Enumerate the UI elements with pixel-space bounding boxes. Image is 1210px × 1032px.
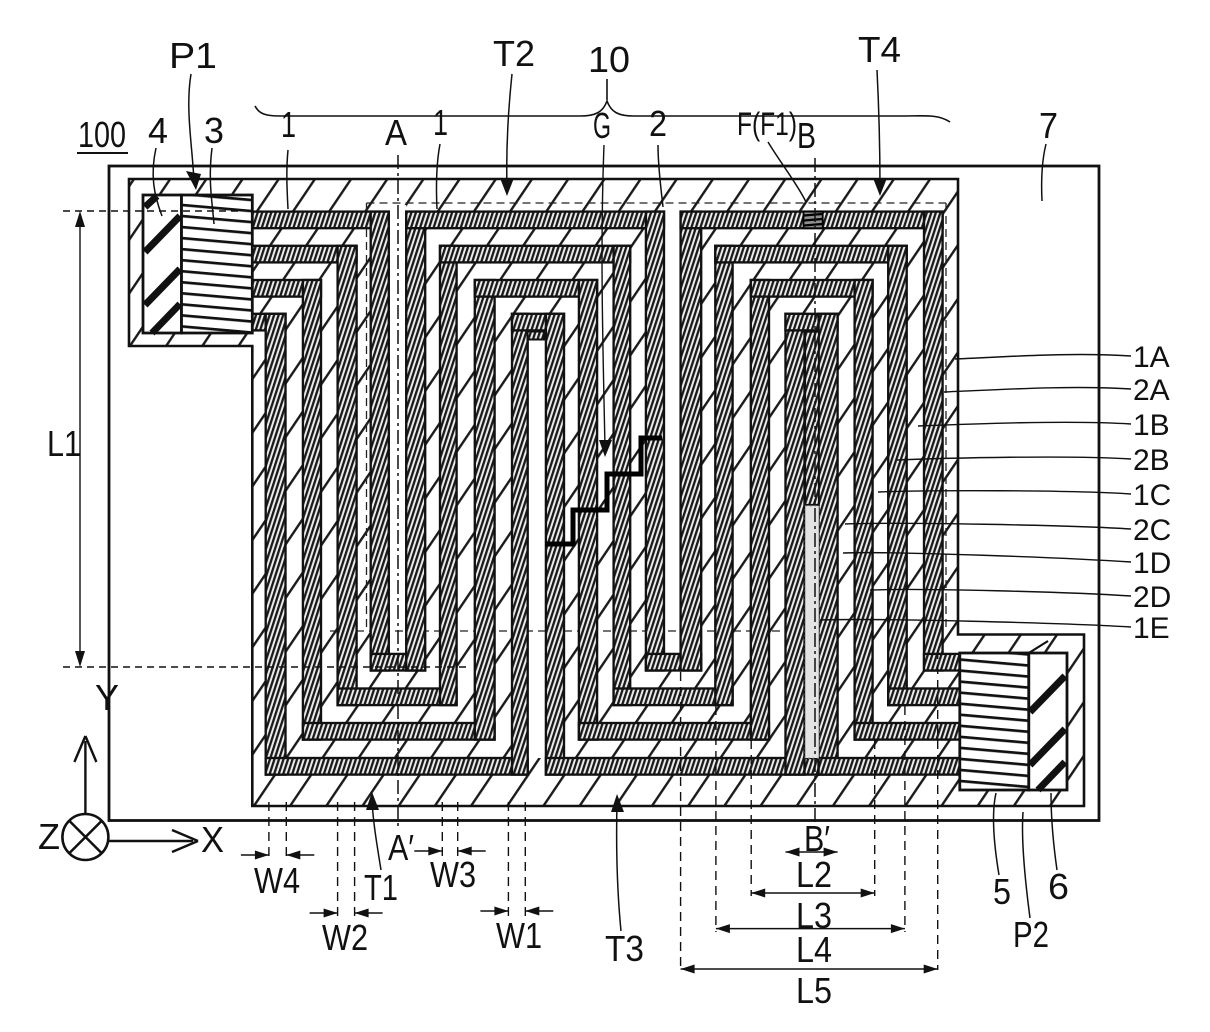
svg-text:1E: 1E [1133,612,1170,645]
svg-text:P1: P1 [169,35,217,76]
svg-text:7: 7 [1039,105,1058,146]
svg-text:A: A [385,112,407,153]
svg-text:3: 3 [204,110,224,151]
svg-text:1B: 1B [1133,409,1170,442]
svg-text:L2: L2 [796,854,832,895]
svg-text:2B: 2B [1133,444,1170,477]
svg-text:B: B [797,115,816,156]
svg-text:5: 5 [993,871,1011,912]
svg-text:A′: A′ [388,827,414,868]
svg-text:1C: 1C [1133,479,1171,512]
svg-text:B′: B′ [804,818,830,859]
svg-text:2D: 2D [1133,581,1171,614]
svg-text:2: 2 [649,103,667,144]
svg-text:F(F1): F(F1) [737,106,797,142]
svg-text:6: 6 [1048,866,1069,907]
svg-text:T2: T2 [493,33,535,74]
svg-text:Y: Y [95,677,119,718]
svg-text:T3: T3 [605,928,644,969]
svg-text:2C: 2C [1133,514,1171,547]
svg-text:100: 100 [78,114,126,155]
svg-text:T4: T4 [858,29,901,70]
svg-text:T1: T1 [364,867,398,908]
svg-text:1: 1 [433,102,448,143]
svg-text:W1: W1 [496,915,542,956]
svg-text:X: X [201,819,224,860]
svg-text:L4: L4 [796,929,832,970]
svg-text:1: 1 [281,104,296,145]
svg-text:L5: L5 [796,970,832,1011]
svg-text:1A: 1A [1133,341,1170,374]
svg-text:W3: W3 [430,854,476,895]
svg-text:10: 10 [588,39,630,80]
svg-text:P2: P2 [1013,914,1049,955]
svg-text:L1: L1 [47,423,81,464]
svg-text:4: 4 [148,110,168,151]
svg-text:W2: W2 [322,917,368,958]
svg-text:1D: 1D [1133,547,1171,580]
svg-text:W4: W4 [254,860,300,901]
svg-text:Z: Z [38,816,60,857]
svg-text:2A: 2A [1133,374,1170,407]
svg-text:G: G [593,105,611,146]
